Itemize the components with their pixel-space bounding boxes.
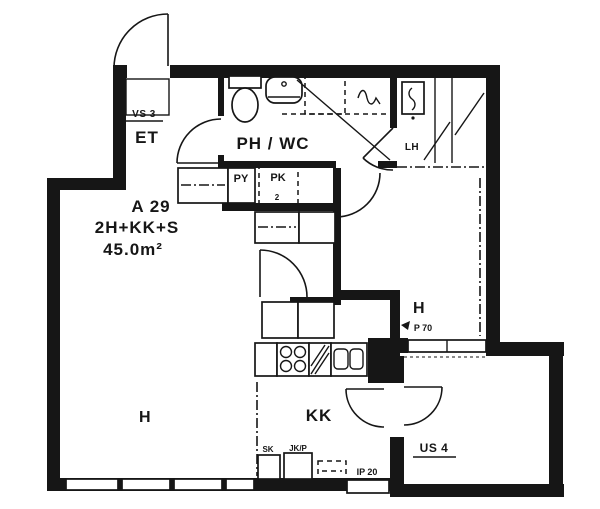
room-label-h-left: H [139, 409, 151, 426]
window-code-ip20: IP 20 [357, 467, 378, 477]
washer-label: PY [234, 173, 249, 185]
worktop [309, 343, 331, 376]
window-pane [347, 480, 389, 493]
unit-id: A 29 [131, 197, 170, 216]
sauna-heater-icon [402, 82, 424, 120]
room-right-door [336, 173, 380, 217]
dryer-box: PK 2 [259, 166, 298, 205]
window-pane [122, 479, 170, 490]
floor-plan-canvas: PY PK 2 [0, 0, 600, 509]
dryer-label: PK [270, 172, 285, 184]
dryer-note: 2 [275, 193, 280, 202]
exterior-walls [47, 65, 564, 497]
room-label-entry: ET [135, 128, 159, 147]
stove-icon [277, 343, 309, 376]
sauna-fixtures [397, 78, 486, 167]
room-label-kk: KK [306, 406, 333, 425]
room-label-h-right: H [413, 300, 425, 317]
room-left-door [260, 250, 307, 297]
wall-code-us4: US 4 [413, 441, 456, 457]
room-label-bath: PH / WC [236, 134, 309, 153]
svg-text:P 70: P 70 [414, 323, 432, 333]
toilet [229, 76, 261, 122]
washer-box: PY [228, 168, 255, 203]
counter-cabinet [255, 343, 277, 376]
floor-plan-drawing: PY PK 2 [0, 0, 600, 509]
bath-door [177, 119, 221, 163]
kitchen-fixtures: SK JK/P [255, 302, 367, 480]
unit-area: 45.0m² [103, 240, 163, 259]
door-code-p70: P 70 [401, 321, 432, 333]
kitchen-cabinet [262, 302, 298, 338]
window-pane [66, 479, 118, 490]
entry-wardrobe [178, 168, 228, 203]
sink-unit [331, 343, 367, 376]
cleaning-cabinet-box: SK [258, 445, 280, 479]
kitchen-cabinet [298, 302, 334, 338]
fridge-label: JK/P [289, 444, 307, 453]
fridge-box: JK/P [284, 444, 312, 479]
kitchen-door [346, 387, 442, 427]
cleaning-cabinet-label: SK [262, 445, 273, 454]
window-pane [174, 479, 222, 490]
svg-text:US 4: US 4 [420, 441, 449, 455]
sink [266, 77, 302, 103]
hall-closet [255, 212, 335, 243]
floor-drain-icon [358, 91, 380, 105]
sauna-benches [424, 78, 484, 163]
room-label-sauna: LH [405, 142, 419, 153]
window-pane [226, 479, 254, 490]
svg-text:VS 3: VS 3 [132, 109, 156, 120]
unit-type: 2H+KK+S [95, 218, 179, 237]
